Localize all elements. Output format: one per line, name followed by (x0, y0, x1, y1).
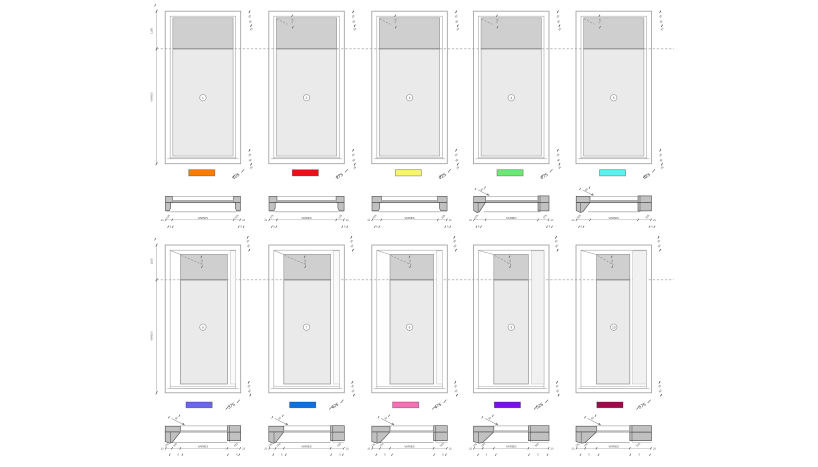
svg-text:VARIES: VARIES (301, 216, 311, 220)
svg-text:5: 5 (613, 96, 615, 100)
svg-text:8: 8 (409, 325, 411, 329)
svg-text:VARIES: VARIES (506, 216, 516, 220)
svg-text:VARIES: VARIES (151, 331, 154, 341)
svg-text:1: 1 (202, 96, 204, 100)
svg-text:VARIES: VARIES (404, 445, 414, 449)
svg-text:VARIES: VARIES (609, 216, 619, 220)
svg-text:6: 6 (202, 325, 204, 329)
svg-text:7: 7 (306, 325, 308, 329)
svg-text:VARIES: VARIES (151, 92, 154, 102)
svg-text:4: 4 (510, 96, 512, 100)
svg-text:VARIES: VARIES (198, 216, 208, 220)
svg-text:VARIES: VARIES (506, 445, 516, 449)
svg-text:VARIES: VARIES (404, 216, 414, 220)
svg-text:10: 10 (612, 325, 616, 329)
svg-text:1100: 1100 (151, 28, 154, 34)
svg-text:VARIES: VARIES (609, 445, 619, 449)
svg-text:2: 2 (306, 96, 308, 100)
svg-text:9: 9 (510, 325, 512, 329)
svg-text:3: 3 (409, 96, 411, 100)
svg-text:VARIES: VARIES (301, 445, 311, 449)
svg-text:VARIES: VARIES (198, 445, 208, 449)
svg-text:1100: 1100 (151, 258, 154, 264)
